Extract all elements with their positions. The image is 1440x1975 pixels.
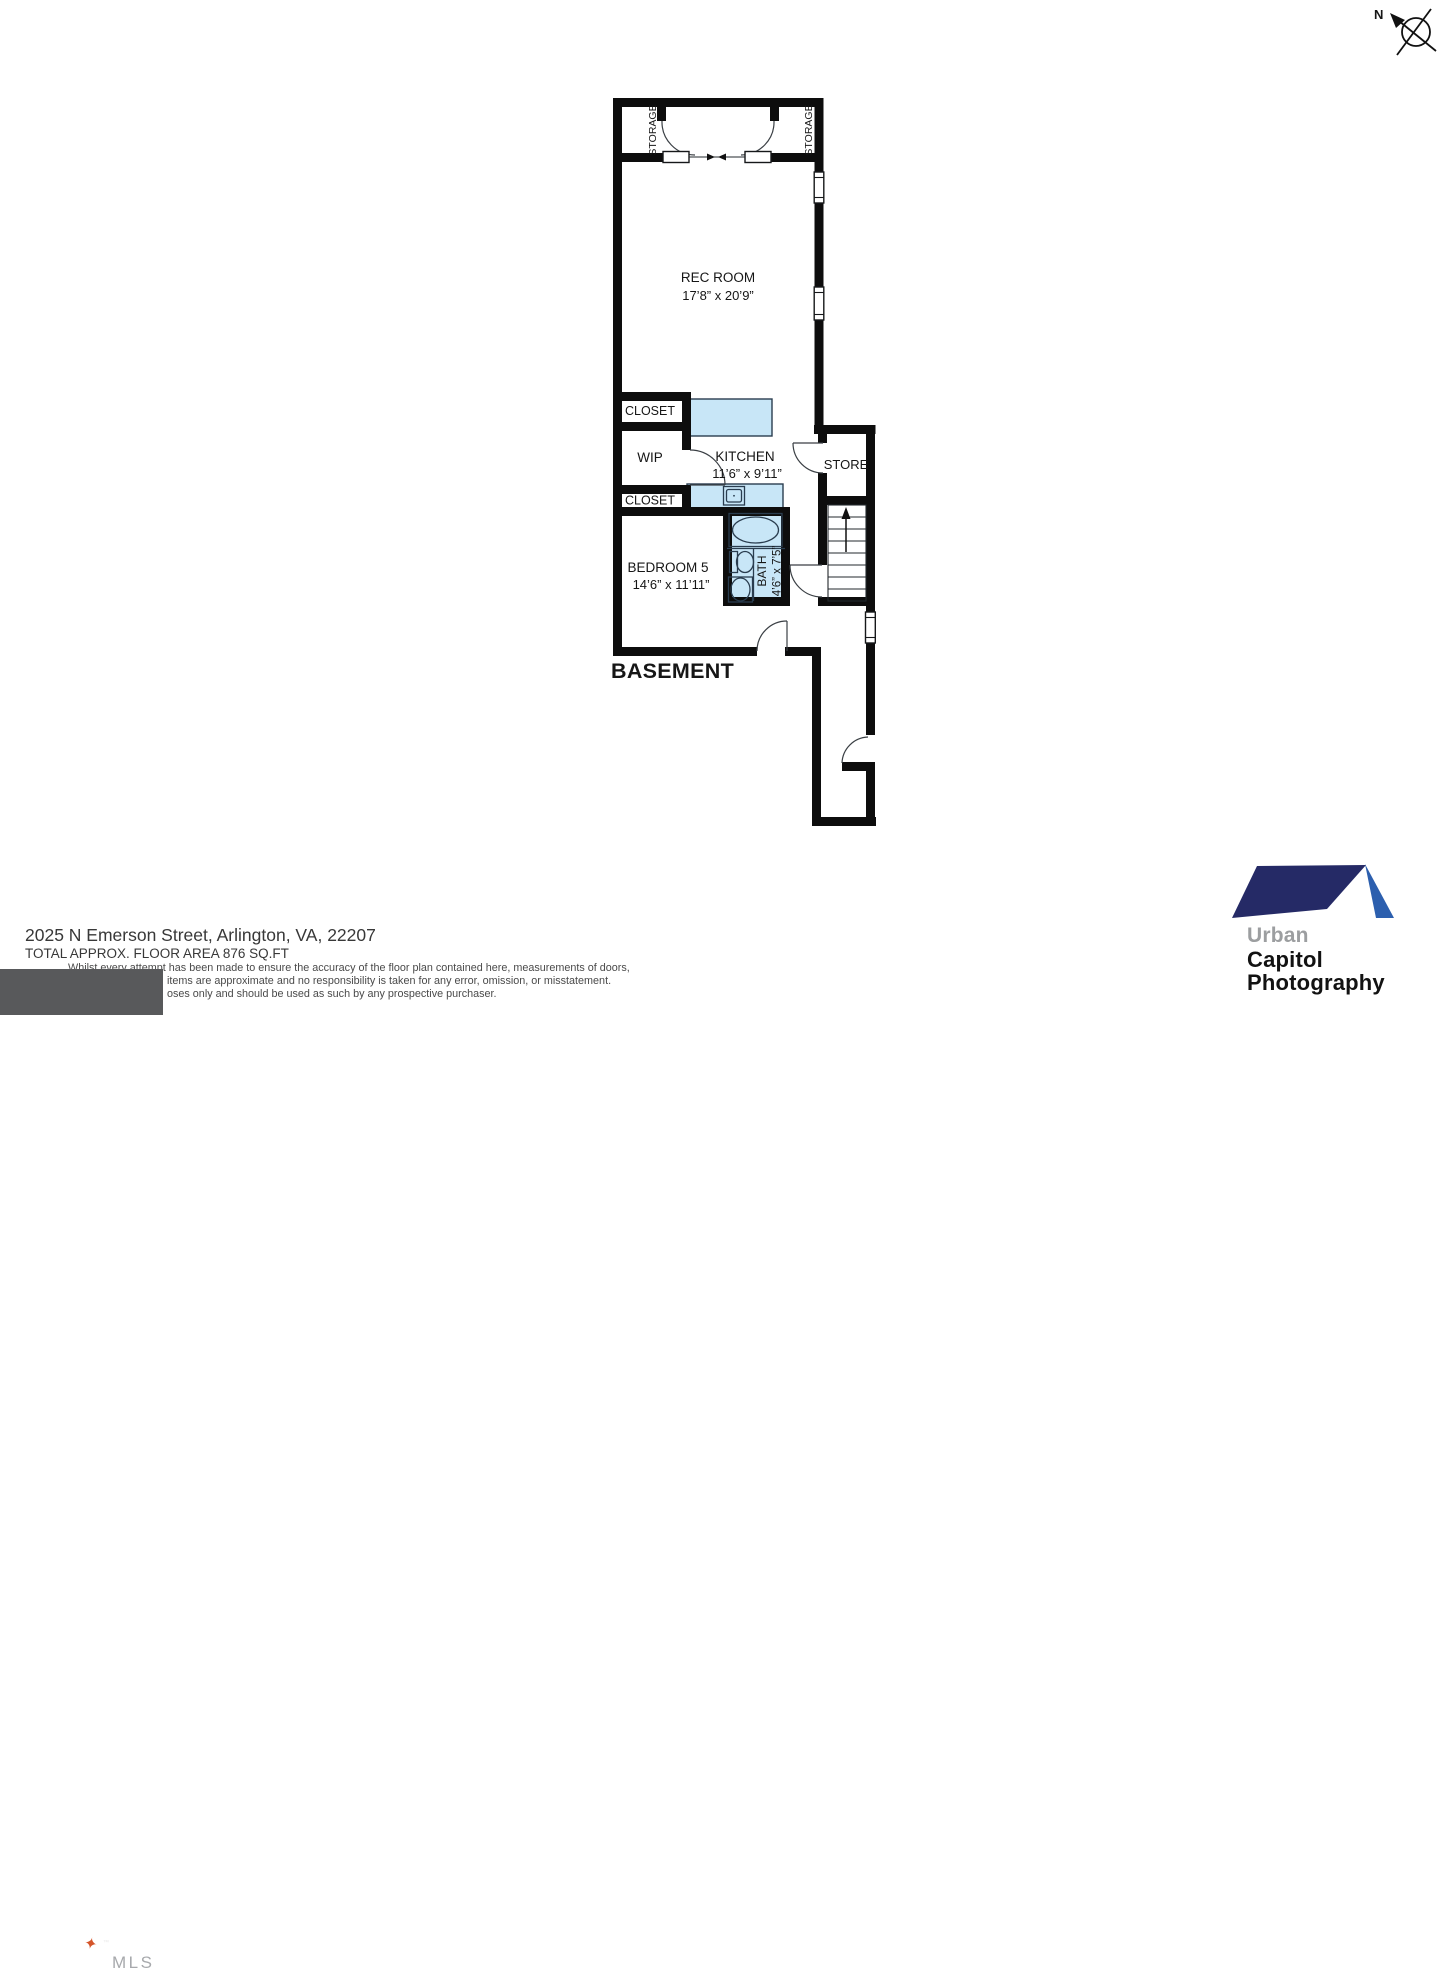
storage-left-label: STORAGE (647, 104, 659, 155)
urban-capitol-roof-icon (1228, 858, 1403, 923)
kitchen-dims: 11’6” x 9’11” (712, 466, 782, 481)
bedroom-dims: 14’6” x 11’11” (633, 577, 710, 592)
mls-wordmark: MLS (112, 1953, 154, 1973)
floorplan-page: { "compass": { "north_label": "N" }, "pl… (0, 0, 1440, 1018)
urban-capitol-line1: Urban (1247, 924, 1309, 948)
store-label: STORE (824, 457, 869, 472)
staircase (828, 505, 866, 601)
window-icon (814, 287, 824, 320)
disclaimer-line-3: oses only and should be used as such by … (167, 988, 497, 1000)
stairs-up-arrow-icon (842, 507, 851, 519)
window-icon (814, 172, 824, 203)
bath-label: BATH (755, 555, 769, 586)
storage-right-door-icon (741, 121, 774, 155)
rec-room-dims: 17’8” x 20’9” (682, 288, 754, 303)
closet-upper-label: CLOSET (625, 404, 675, 418)
compass: N (1372, 2, 1440, 60)
closet-lower-label: CLOSET (625, 494, 675, 508)
bright-mls-logo: bright ✦ ™ MLS (0, 969, 163, 1015)
storage-left-door-icon (662, 121, 695, 155)
bedroom-exterior-door-icon (757, 621, 787, 651)
storage-right-label: STORAGE (803, 104, 815, 155)
corridor-door-icon (842, 737, 868, 763)
store-door-icon (793, 443, 823, 473)
kitchen-label: KITCHEN (715, 449, 774, 464)
disclaimer-line-2: items are approximate and no responsibil… (167, 975, 611, 987)
floor-title: BASEMENT (611, 659, 734, 683)
trademark-symbol: ™ (103, 1940, 109, 1946)
bath-dims: 4’6” x 7’5” (772, 546, 784, 597)
hall-door-icon (790, 565, 822, 597)
floor-area-text: TOTAL APPROX. FLOOR AREA 876 SQ.FT (25, 946, 289, 961)
sliding-door-icon (663, 152, 771, 163)
floor-plan: REC ROOM 17’8” x 20’9” CLOSET WIP CLOSET… (605, 90, 885, 835)
north-label: N (1374, 7, 1383, 22)
wip-label: WIP (637, 450, 663, 465)
property-address: 2025 N Emerson Street, Arlington, VA, 22… (25, 925, 376, 946)
urban-capitol-line3: Photography (1247, 970, 1385, 996)
bedroom-label: BEDROOM 5 (627, 560, 708, 575)
rec-room-label: REC ROOM (681, 270, 755, 285)
window-icon (865, 612, 876, 643)
